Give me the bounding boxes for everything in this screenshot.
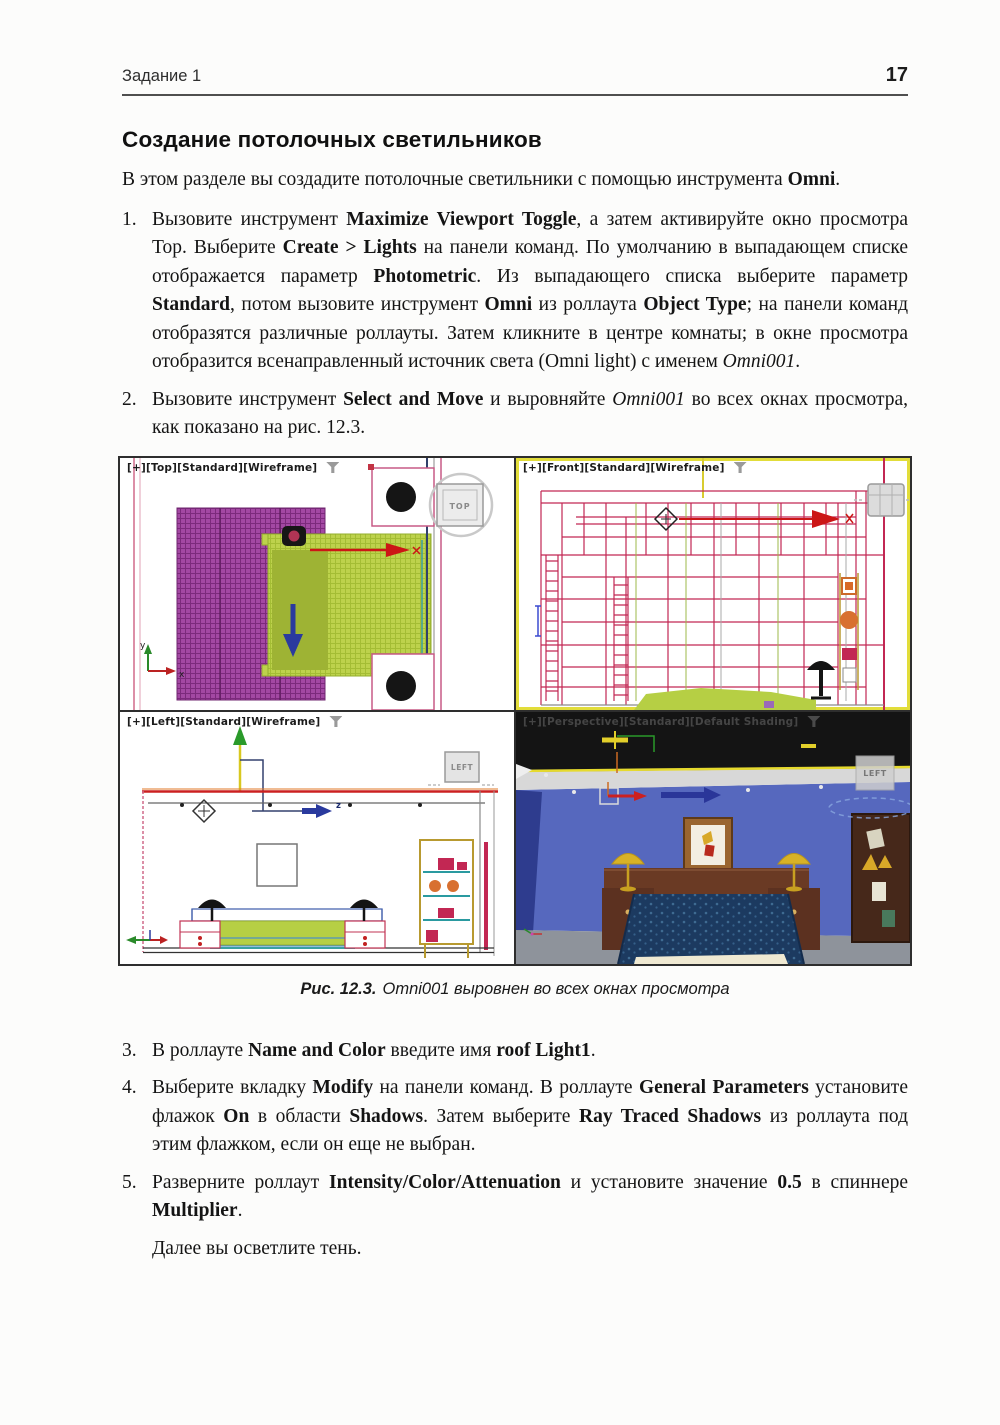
step-text: Разверните роллаут Intensity/Color/Atten… <box>152 1169 908 1226</box>
viewport-filter-icon <box>326 462 339 473</box>
section-title: Создание потолочных светильников <box>122 127 908 153</box>
figure-12-3: TOP y x [+][Top][Standard][Wireframe] <box>118 456 912 966</box>
viewport-label-text: [+][Left][Standard][Wireframe] <box>127 716 320 728</box>
step-text: Вызовите инструмент Select and Move и вы… <box>152 386 908 443</box>
step-item: 5. Разверните роллаут Intensity/Color/At… <box>122 1169 908 1226</box>
figure-caption-text: Omni001 выровнен во всех окнах просмотра <box>383 980 730 998</box>
step-item: 3. В роллауте Name and Color введите имя… <box>122 1037 908 1066</box>
viewport-perspective: LEFT [+][Perspective][Standard][Default … <box>516 712 910 964</box>
step-number: 4. <box>122 1074 152 1160</box>
left-viewport-canvas: z <box>120 712 514 964</box>
figure-caption-label: Рис. 12.3. <box>300 980 376 998</box>
step-text: Вызовите инструмент Maximize Viewport To… <box>152 206 908 377</box>
step-number: 3. <box>122 1037 152 1066</box>
viewport-label: [+][Top][Standard][Wireframe] <box>127 462 339 474</box>
header-rule <box>122 94 908 96</box>
viewport-filter-icon <box>807 716 820 727</box>
front-viewport-canvas <box>516 458 910 710</box>
step-number: 5. <box>122 1169 152 1226</box>
viewport-label: [+][Front][Standard][Wireframe] <box>523 462 747 474</box>
page-header: Задание 1 17 <box>122 64 908 87</box>
step-item: 4. Выберите вкладку Modify на панели ком… <box>122 1074 908 1160</box>
viewport-label: [+][Perspective][Standard][Default Shadi… <box>523 716 820 728</box>
axis-y-label: y <box>140 641 146 651</box>
steps-3-5: 3. В роллауте Name and Color введите имя… <box>122 1037 908 1226</box>
viewport-filter-icon <box>329 716 342 727</box>
figure-caption: Рис. 12.3.Omni001 выровнен во всех окнах… <box>122 980 908 999</box>
page-number: 17 <box>886 64 908 87</box>
viewport-left: z <box>120 712 514 964</box>
viewport-label-text: [+][Top][Standard][Wireframe] <box>127 462 317 474</box>
step-text: Выберите вкладку Modify на панели команд… <box>152 1074 908 1160</box>
running-head: Задание 1 <box>122 67 201 86</box>
axis-z-label: z <box>336 801 341 811</box>
step-number: 1. <box>122 206 152 377</box>
viewport-front: [+][Front][Standard][Wireframe] <box>516 458 910 710</box>
viewport-top: TOP y x [+][Top][Standard][Wireframe] <box>120 458 514 710</box>
top-viewport-canvas: TOP y x <box>120 458 514 710</box>
closing-paragraph: Далее вы осветлите тень. <box>152 1235 908 1264</box>
step-item: 1. Вызовите инструмент Maximize Viewport… <box>122 206 908 377</box>
step-text: В роллауте Name and Color введите имя ro… <box>152 1037 908 1066</box>
viewport-filter-icon <box>734 462 747 473</box>
viewport-label-text: [+][Front][Standard][Wireframe] <box>523 462 725 474</box>
page-content: Задание 1 17 Создание потолочных светиль… <box>122 64 908 1263</box>
viewcube-left-label: LEFT <box>451 763 474 772</box>
step-number: 2. <box>122 386 152 443</box>
axis-x-label: x <box>179 670 185 680</box>
step-item: 2. Вызовите инструмент Select and Move и… <box>122 386 908 443</box>
viewcube-top-label: TOP <box>449 502 470 511</box>
intro-paragraph: В этом разделе вы создадите потолочные с… <box>122 166 908 195</box>
steps-1-2: 1. Вызовите инструмент Maximize Viewport… <box>122 206 908 443</box>
viewport-label: [+][Left][Standard][Wireframe] <box>127 716 342 728</box>
viewcube-perspective-label: LEFT <box>863 769 887 778</box>
perspective-viewport-canvas: LEFT <box>516 712 910 964</box>
viewport-label-text: [+][Perspective][Standard][Default Shadi… <box>523 716 798 728</box>
